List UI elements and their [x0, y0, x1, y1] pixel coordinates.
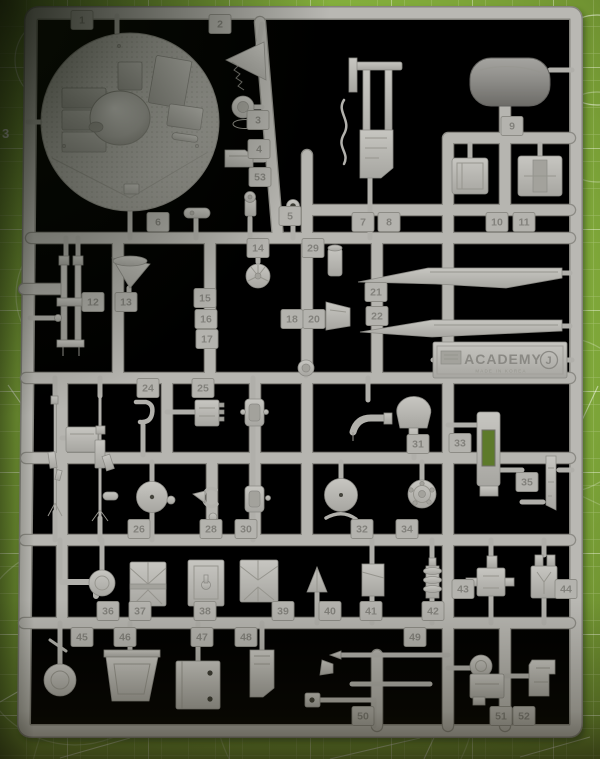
- photo-lighting: [0, 0, 600, 759]
- photo-of-model-sprue-on-cutting-mat: 13141516171813290°12: [0, 0, 600, 759]
